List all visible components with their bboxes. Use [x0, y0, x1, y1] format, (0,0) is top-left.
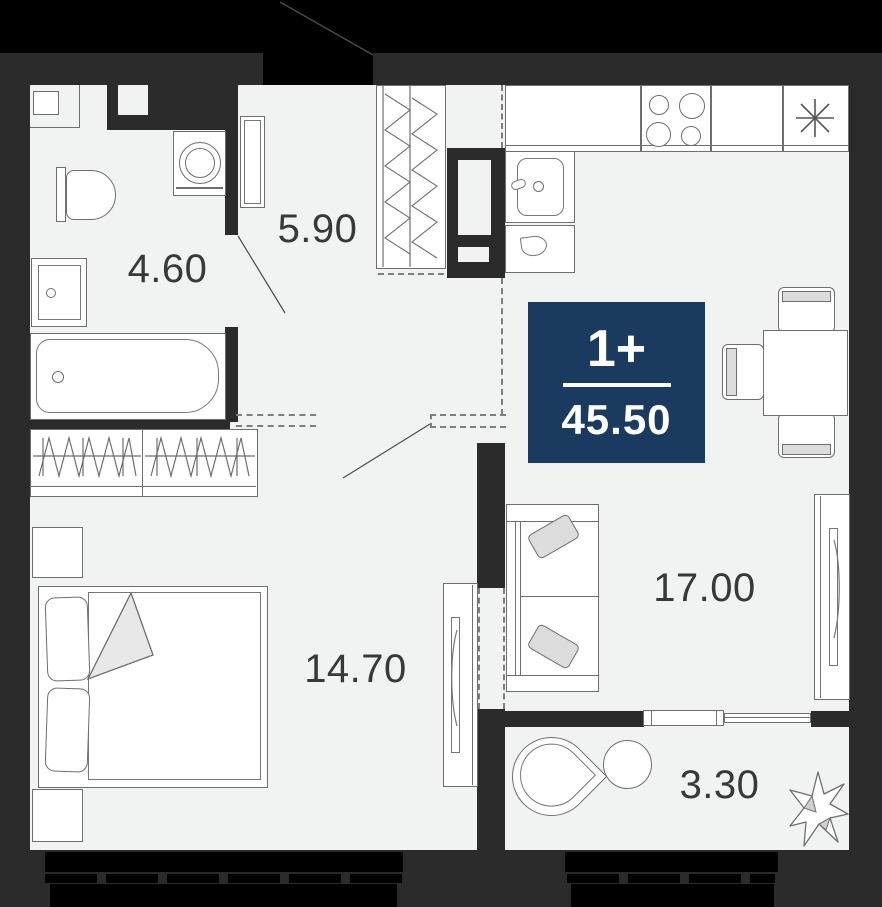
door-swing-lines	[0, 0, 882, 907]
floor-plan: 4.60 5.90 14.70 17.00 3.30 1+ 45.50	[0, 0, 882, 907]
